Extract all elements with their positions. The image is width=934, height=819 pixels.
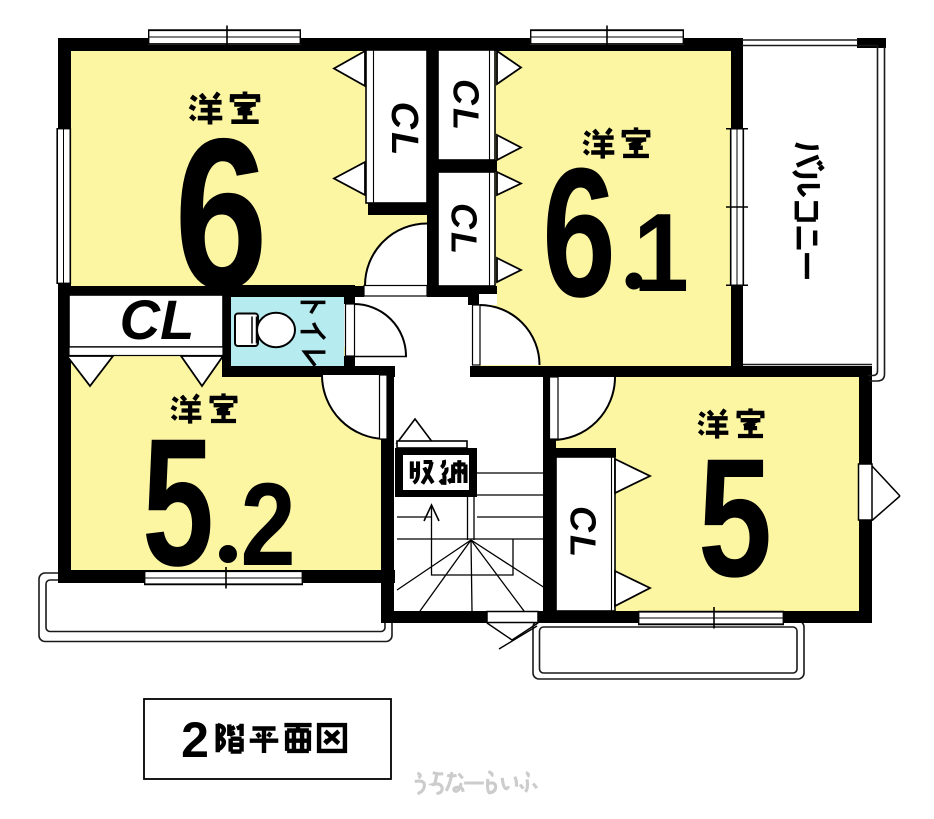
svg-text:2: 2 — [240, 459, 295, 591]
svg-text:CL: CL — [563, 506, 604, 560]
svg-text:CL: CL — [446, 79, 487, 133]
svg-text:5: 5 — [698, 424, 772, 613]
svg-text:5: 5 — [142, 401, 214, 604]
svg-text:6: 6 — [542, 130, 616, 335]
svg-text:CL: CL — [444, 203, 485, 257]
svg-text:CL: CL — [120, 288, 195, 351]
svg-text:1: 1 — [633, 191, 689, 315]
svg-text:CL: CL — [383, 102, 425, 159]
svg-text:2: 2 — [181, 712, 209, 768]
